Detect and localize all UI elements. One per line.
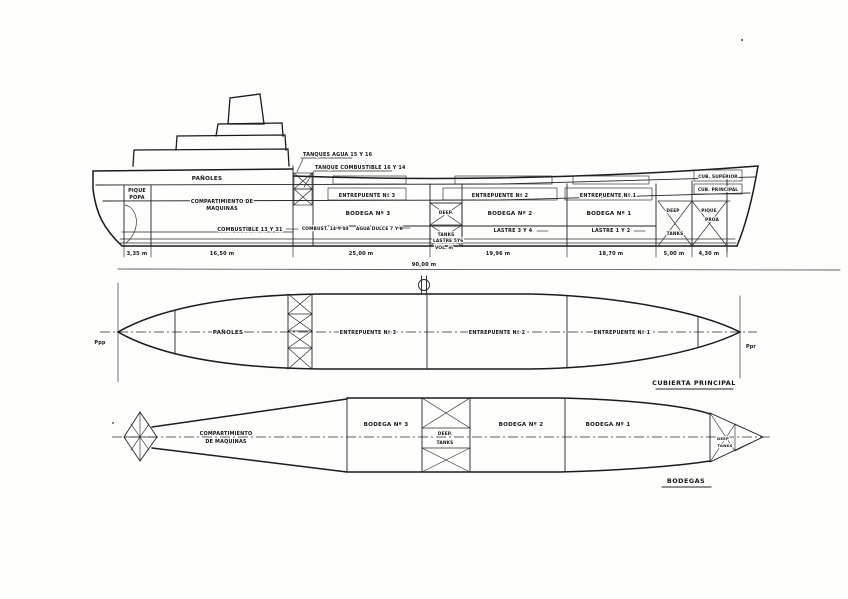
label-lastre56-1: LASTRE 5Y6 <box>433 238 463 244</box>
label-bodega3-holds: BODEGA Nº 3 <box>364 421 409 428</box>
stern-structure <box>124 412 157 461</box>
dim-18-70: 18,70 m <box>599 251 624 257</box>
label-deep-bow-1: DEEP <box>666 208 679 214</box>
funnel <box>228 94 264 124</box>
bow-structure: DEEP TANKS <box>710 413 763 462</box>
label-panoles-profile: PAÑOLES <box>192 175 223 182</box>
dim-25-00: 25,00 m <box>349 251 374 257</box>
label-entrepuente1-deck: ENTREPUENTE Nº 1 <box>594 330 651 336</box>
dim-19-96: 19,96 m <box>486 251 511 257</box>
label-entrepuente2-profile: ENTREPUENTE Nº 2 <box>472 193 528 199</box>
bow-deck-boxes: CUB. SUPERIOR CUB. PRINCIPAL <box>694 170 742 194</box>
label-bodega2-holds: BODEGA Nº 2 <box>499 421 544 428</box>
holds-deep-tank: DEEP. TANKS <box>422 398 470 472</box>
label-cub-superior: CUB. SUPERIOR <box>698 174 738 180</box>
label-combust: COMBUST. 14 Y 13 <box>302 226 349 232</box>
label-entrepuente3-profile: ENTREPUENTE Nº 3 <box>339 193 396 199</box>
label-tanque-combustible: TANQUE COMBUSTIBLE 16 Y 14 <box>315 165 406 171</box>
label-pique-proa-1: PIQUE <box>701 208 717 214</box>
label-maquinas-2: MAQUINAS <box>206 206 238 212</box>
label-entrepuente3-deck: ENTREPUENTE Nº 3 <box>340 330 397 336</box>
dim-3-35: 3,35 m <box>127 251 148 257</box>
label-deep-holds-1: DEEP. <box>438 431 452 437</box>
holds-outline <box>347 398 710 472</box>
label-pique-proa-2: PROA <box>705 217 719 223</box>
scan-speckle <box>741 39 743 41</box>
label-tanques-agua: TANQUES AGUA 15 Y 16 <box>303 152 373 158</box>
label-entrepuente2-deck: ENTREPUENTE Nº 2 <box>469 330 525 336</box>
dimension-row: 3,35 m 16,50 m 25,00 m 19,96 m 18,70 m 5… <box>118 246 840 270</box>
label-panoles-deck: PAÑOLES <box>213 329 244 336</box>
label-cub-principal: CUB. PRINCIPAL <box>698 187 738 193</box>
label-deep-bow-2: TANKS <box>667 231 684 237</box>
ship-plan-svg: TANQUES AGUA 15 Y 16 TANQUE COMBUSTIBLE … <box>0 0 848 599</box>
label-maquinas-holds-1: COMPARTIMIENTO <box>200 431 253 437</box>
label-bodega2-profile: BODEGA Nº 2 <box>488 210 533 217</box>
label-lastre12: LASTRE 1 Y 2 <box>592 228 631 234</box>
dim-5-00: 5,00 m <box>664 251 685 257</box>
scan-speckle <box>112 422 114 424</box>
scanned-ship-plan-page: TANQUES AGUA 15 Y 16 TANQUE COMBUSTIBLE … <box>0 0 848 599</box>
deck-tank-strip <box>288 294 312 369</box>
stern-aperture-curve <box>125 205 136 243</box>
dim-16-50: 16,50 m <box>210 251 235 257</box>
label-maquinas-1: COMPARTIMIENTO DE <box>191 199 253 205</box>
label-pique-popa-1: PIQUE <box>128 188 146 194</box>
label-bodega3-profile: BODEGA Nº 3 <box>346 210 391 217</box>
dim-4-30: 4,30 m <box>699 251 720 257</box>
label-deep-holds-2: TANKS <box>437 440 454 446</box>
title-cubierta-principal: CUBIERTA PRINCIPAL <box>652 379 736 387</box>
holds-view: DEEP. TANKS DEEP TANKS COMPARTIMIENTO DE… <box>112 398 770 487</box>
label-lastre56-2: VOL. m <box>435 245 454 251</box>
label-deep-bow-holds-2: TANKS <box>717 443 732 448</box>
dim-total-length: 90,00 m <box>412 262 437 268</box>
label-deep-mid-2: TANKS <box>438 232 455 238</box>
main-deck-view: PAÑOLES ENTREPUENTE Nº 3 ENTREPUENTE Nº … <box>94 283 757 389</box>
label-deep-mid-1: DEEP. <box>439 210 453 216</box>
superstructure <box>133 94 289 166</box>
label-combustible: COMBUSTIBLE 13 Y 31 <box>217 227 283 233</box>
midship-symbol <box>419 276 430 294</box>
label-ppr: Ppr <box>746 344 756 350</box>
label-entrepuente1-profile: ENTREPUENTE Nº 1 <box>580 193 637 199</box>
profile-view: TANQUES AGUA 15 Y 16 TANQUE COMBUSTIBLE … <box>93 94 840 294</box>
title-bodegas: BODEGAS <box>667 477 705 485</box>
label-bodega1-holds: BODEGA Nº 1 <box>586 421 631 428</box>
label-lastre34: LASTRE 3 Y 4 <box>494 228 533 234</box>
label-pique-popa-2: POPA <box>129 195 144 201</box>
label-deep-bow-holds-1: DEEP <box>717 436 729 441</box>
label-maquinas-holds-2: DE MAQUINAS <box>205 439 247 445</box>
label-ppp: Ppp <box>94 340 105 346</box>
label-agua-dulce: AGUA DULCE 7 Y 8 <box>356 226 403 232</box>
label-bodega1-profile: BODEGA Nº 1 <box>587 210 632 217</box>
